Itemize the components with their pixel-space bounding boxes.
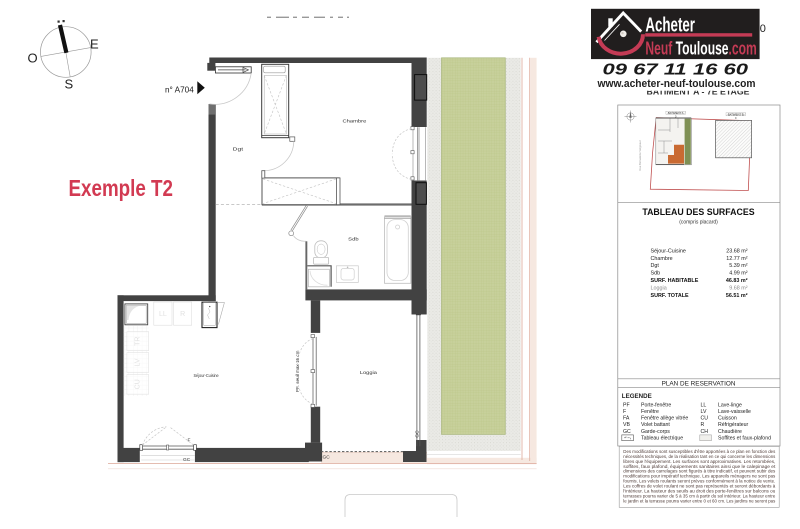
svg-text:12.77 m²: 12.77 m² [726, 256, 747, 262]
svg-text:R: R [180, 311, 185, 318]
svg-text:BATIMENT A: BATIMENT A [668, 111, 684, 115]
svg-text:TR: TR [135, 337, 142, 346]
svg-text:PF: PF [623, 402, 630, 408]
svg-text:Séjour-Cuisine: Séjour-Cuisine [194, 373, 219, 379]
svg-text:CH: CH [701, 429, 709, 435]
svg-text:VB: VB [623, 422, 630, 428]
svg-text:E: E [90, 37, 99, 52]
svg-text:0: 0 [760, 23, 766, 35]
svg-text:Tableau électrique: Tableau électrique [641, 436, 683, 442]
svg-text:SURF. HABITABLE: SURF. HABITABLE [651, 278, 699, 284]
svg-text:Loggia: Loggia [651, 286, 667, 292]
svg-text:F: F [188, 438, 191, 444]
svg-text:PLAN DE RESERVATION: PLAN DE RESERVATION [662, 380, 736, 387]
svg-text:Séjour-Cuisine: Séjour-Cuisine [651, 248, 686, 254]
svg-text:FA: FA [623, 416, 630, 422]
svg-text:GC: GC [623, 429, 631, 435]
svg-text:Soffites et faux-plafond: Soffites et faux-plafond [718, 436, 771, 442]
svg-text:TABLEAU DES SURFACES: TABLEAU DES SURFACES [642, 207, 754, 217]
svg-text:Neuf Toulouse.com: Neuf Toulouse.com [645, 38, 756, 59]
svg-text:Volet battant: Volet battant [641, 422, 670, 428]
svg-text:CU: CU [135, 379, 142, 389]
svg-text:Porte-fenêtre: Porte-fenêtre [641, 402, 671, 408]
svg-text:GC: GC [323, 455, 331, 461]
svg-text:SURF. TOTALE: SURF. TOTALE [651, 293, 690, 299]
svg-text:Réfrigérateur: Réfrigérateur [718, 422, 749, 428]
svg-text:Cuisson: Cuisson [718, 416, 737, 422]
svg-text:Acheter: Acheter [645, 15, 695, 37]
svg-text:BATIMENT B: BATIMENT B [728, 112, 744, 116]
svg-text:CU: CU [701, 416, 709, 422]
svg-text:PF seuil max 15 cm: PF seuil max 15 cm [295, 350, 300, 392]
svg-text:Chambre: Chambre [651, 256, 673, 262]
svg-text:Sdb: Sdb [651, 271, 661, 277]
svg-text:23.68 m²: 23.68 m² [726, 248, 747, 254]
svg-text:n° A704: n° A704 [165, 86, 194, 95]
svg-text:R: R [701, 422, 705, 428]
svg-text:09 67 11 16 60: 09 67 11 16 60 [603, 62, 749, 79]
svg-text:Lave-linge: Lave-linge [718, 402, 742, 408]
svg-text:5.39 m²: 5.39 m² [729, 263, 747, 269]
svg-text:Loggia: Loggia [360, 370, 377, 376]
svg-text:Rue Bernadette Vergnaud: Rue Bernadette Vergnaud [638, 140, 642, 171]
svg-text:56.51 m²: 56.51 m² [726, 293, 748, 299]
svg-text:Chambre: Chambre [343, 118, 367, 124]
svg-text:Fenêtre allège vitrée: Fenêtre allège vitrée [641, 416, 688, 422]
svg-text:LV: LV [135, 358, 142, 366]
svg-text:46.83 m²: 46.83 m² [726, 278, 748, 284]
svg-text:Dgt: Dgt [233, 146, 244, 152]
svg-text:Garde-corps: Garde-corps [641, 429, 670, 435]
svg-text:Fenêtre: Fenêtre [641, 409, 659, 415]
svg-text:O: O [28, 51, 38, 66]
svg-text:Sdb: Sdb [348, 237, 359, 243]
svg-text:le jardin et la terrasse pourr: le jardin et la terrasse pourra varier e… [623, 498, 775, 503]
svg-text:Exemple T2: Exemple T2 [69, 175, 174, 201]
svg-text:(compris placard): (compris placard) [679, 220, 718, 226]
svg-text:LL: LL [701, 402, 707, 408]
svg-text:4.99 m²: 4.99 m² [729, 271, 747, 277]
svg-text:GC: GC [415, 430, 421, 438]
svg-text:Chaudière: Chaudière [718, 429, 742, 435]
svg-text:GC: GC [183, 457, 191, 463]
svg-text:D: D [735, 117, 737, 120]
svg-text:LV: LV [701, 409, 707, 415]
svg-text:F: F [623, 409, 626, 415]
svg-text:www.acheter-neuf-toulouse.com: www.acheter-neuf-toulouse.com [597, 78, 756, 90]
svg-text:9.68 m²: 9.68 m² [729, 286, 747, 292]
svg-text:LL: LL [159, 311, 167, 318]
svg-text:LEGENDE: LEGENDE [622, 393, 652, 400]
svg-text:Lave-vaisselle: Lave-vaisselle [718, 409, 751, 415]
svg-text:Dgt: Dgt [651, 263, 660, 269]
svg-text:S: S [65, 77, 74, 92]
svg-text:D: D [675, 115, 677, 118]
